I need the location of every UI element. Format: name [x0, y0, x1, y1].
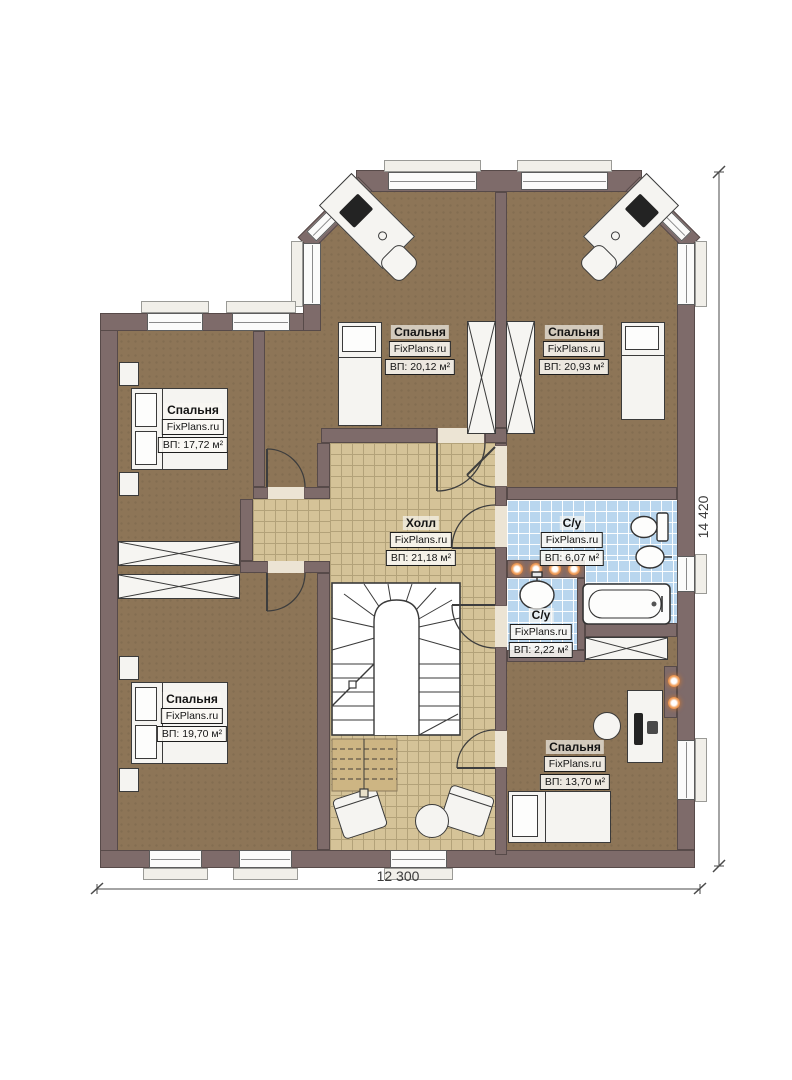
door-opening	[495, 730, 507, 768]
nightstand	[119, 362, 139, 386]
window	[232, 313, 290, 331]
room-label-bathroom: С/у FixPlans.ru ВП: 6,07 м²	[540, 516, 604, 566]
room-area: ВП: 20,93 м²	[539, 359, 609, 375]
window-sill	[695, 554, 707, 594]
pillow	[135, 431, 157, 465]
window-sill	[143, 868, 208, 880]
mouse	[376, 229, 389, 242]
window-sill	[695, 738, 707, 802]
room-name: С/у	[529, 608, 554, 622]
wall-r2-bottom	[507, 487, 677, 500]
watermark: FixPlans.ru	[543, 341, 606, 357]
window-sill	[226, 301, 296, 313]
room-name: С/у	[560, 516, 585, 530]
window	[521, 172, 608, 190]
bed-single	[338, 322, 382, 426]
blanket-line	[339, 357, 381, 358]
window	[149, 850, 202, 868]
wall-r1-bottom	[321, 428, 437, 443]
window	[677, 740, 695, 800]
room-area: ВП: 19,70 м²	[157, 726, 227, 742]
door-opening	[267, 561, 305, 573]
wall-tub-bottom	[585, 623, 677, 637]
pillow	[135, 687, 157, 721]
dimension-width: 12 300	[358, 868, 438, 884]
mouse	[609, 229, 622, 242]
room-label-bedroom-left: Спальня FixPlans.ru ВП: 17,72 м²	[158, 403, 228, 453]
room-area: ВП: 2,22 м²	[509, 642, 573, 658]
spotlight	[511, 563, 523, 575]
coffee-table	[415, 804, 449, 838]
window	[147, 313, 203, 331]
room-name: Спальня	[163, 692, 221, 706]
pillow	[342, 326, 376, 352]
door-opening	[495, 505, 507, 548]
room-name: Спальня	[164, 403, 222, 417]
door-opening	[495, 605, 507, 648]
watermark: FixPlans.ru	[544, 756, 607, 772]
door-opening	[267, 487, 305, 499]
room-name: Холл	[403, 516, 439, 530]
watermark: FixPlans.ru	[161, 708, 224, 724]
bathroom-floor-tub	[585, 560, 677, 623]
wall-r8-niche	[664, 666, 677, 718]
monitor	[634, 713, 643, 745]
window	[303, 243, 321, 305]
watermark: FixPlans.ru	[541, 532, 604, 548]
room-label-bedroom-bottom-left: Спальня FixPlans.ru ВП: 19,70 м²	[157, 692, 227, 742]
room-area: ВП: 13,70 м²	[540, 774, 610, 790]
spotlight	[668, 675, 680, 687]
window-sill	[233, 868, 298, 880]
window-sill	[291, 241, 303, 307]
seat-line	[449, 793, 491, 808]
room-name: Спальня	[545, 325, 603, 339]
wall-left	[100, 313, 118, 868]
wall-stairs-left	[317, 573, 330, 850]
watermark: FixPlans.ru	[390, 532, 453, 548]
window	[677, 243, 695, 305]
wall-corridor-left	[240, 499, 253, 561]
wardrobe	[118, 574, 240, 599]
window	[239, 850, 292, 868]
watermark: FixPlans.ru	[510, 624, 573, 640]
window	[390, 850, 447, 868]
room-label-bedroom-top-left: Спальня FixPlans.ru ВП: 20,12 м²	[385, 325, 455, 375]
room-name: Спальня	[546, 740, 604, 754]
window-sill	[517, 160, 612, 172]
watermark: FixPlans.ru	[162, 419, 225, 435]
dimension-height: 14 420	[695, 477, 711, 557]
desk	[627, 690, 663, 763]
pillow	[625, 326, 659, 350]
wall-r3-right	[253, 331, 265, 487]
nightstand	[119, 472, 139, 496]
pillow	[135, 725, 157, 759]
pc-speaker	[647, 721, 658, 734]
room-label-small-bathroom: С/у FixPlans.ru ВП: 2,22 м²	[509, 608, 573, 658]
door-opening	[495, 445, 507, 487]
desk-chair	[593, 712, 621, 740]
bed-single	[508, 791, 611, 843]
window	[388, 172, 477, 190]
laptop	[625, 193, 660, 228]
wardrobe	[506, 321, 535, 434]
window-sill	[384, 160, 481, 172]
room-label-bedroom-top-right: Спальня FixPlans.ru ВП: 20,93 м²	[539, 325, 609, 375]
wardrobe	[467, 321, 496, 434]
room-area: ВП: 17,72 м²	[158, 437, 228, 453]
blanket-line	[622, 355, 664, 356]
seat-line	[335, 795, 377, 810]
window-sill	[695, 241, 707, 307]
bath-cabinet	[585, 637, 668, 660]
corridor-floor	[253, 499, 330, 561]
room-label-hall: Холл FixPlans.ru ВП: 21,18 м²	[386, 516, 456, 566]
watermark: FixPlans.ru	[389, 341, 452, 357]
wall-hall-topleft	[317, 443, 330, 487]
hall-floor	[330, 443, 495, 850]
room-area: ВП: 21,18 м²	[386, 550, 456, 566]
nightstand	[119, 656, 139, 680]
blanket-line	[545, 792, 546, 842]
laptop	[339, 193, 374, 228]
room-name: Спальня	[391, 325, 449, 339]
bed-single	[621, 322, 665, 420]
spotlight	[668, 697, 680, 709]
pillow	[135, 393, 157, 427]
floor-plan: Спальня FixPlans.ru ВП: 20,12 м² Спальня…	[0, 0, 792, 1080]
wall-smallbath-right	[577, 578, 585, 650]
room-area: ВП: 20,12 м²	[385, 359, 455, 375]
room-label-bedroom-bottom-right: Спальня FixPlans.ru ВП: 13,70 м²	[540, 740, 610, 790]
wardrobe	[118, 541, 240, 566]
nightstand	[119, 768, 139, 792]
pillow	[512, 795, 538, 837]
window	[677, 556, 695, 592]
room-area: ВП: 6,07 м²	[540, 550, 604, 566]
window-sill	[141, 301, 209, 313]
